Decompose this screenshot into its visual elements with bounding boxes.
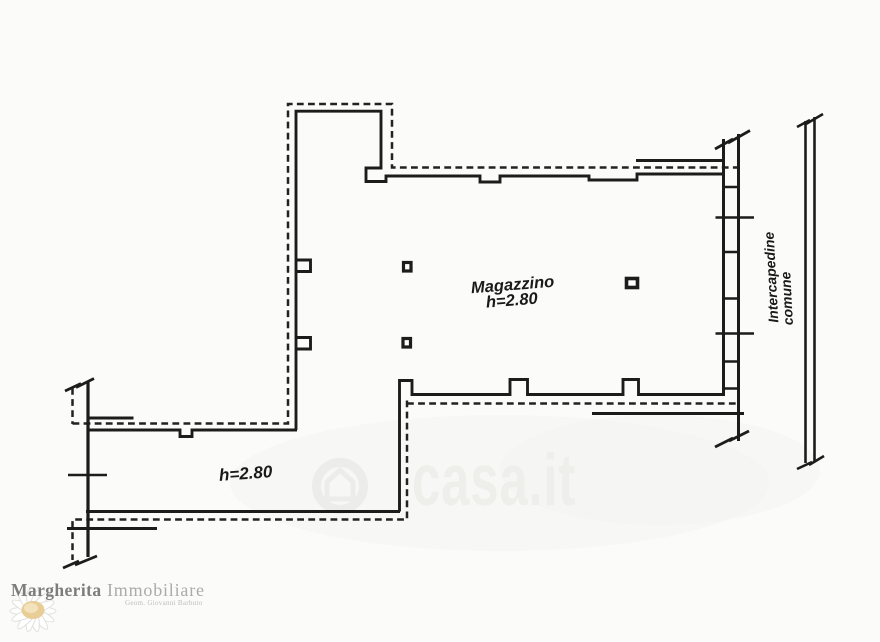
svg-text:Geom. Giovanni Barbuto: Geom. Giovanni Barbuto	[125, 599, 203, 607]
svg-text:comune: comune	[777, 271, 796, 326]
svg-text:casa.it: casa.it	[412, 440, 576, 521]
svg-text:h=2.80: h=2.80	[485, 290, 539, 312]
svg-text:Margherita: Margherita	[11, 580, 102, 600]
svg-text:h=2.80: h=2.80	[218, 462, 273, 485]
svg-text:Immobiliare: Immobiliare	[107, 580, 205, 600]
